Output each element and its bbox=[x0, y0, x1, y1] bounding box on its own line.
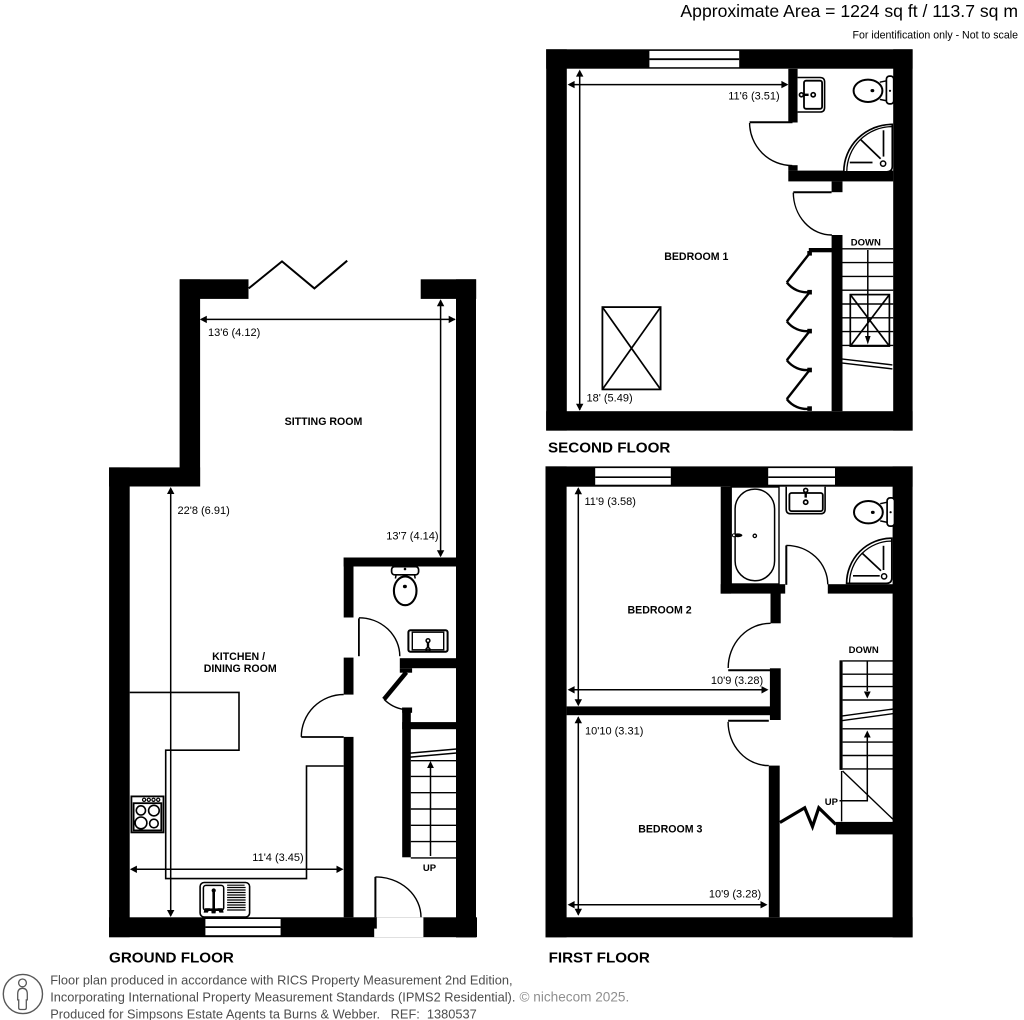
svg-text:10'10 (3.31): 10'10 (3.31) bbox=[585, 726, 643, 738]
svg-text:BEDROOM 3: BEDROOM 3 bbox=[638, 824, 702, 836]
svg-text:SITTING ROOM: SITTING ROOM bbox=[285, 416, 363, 428]
svg-text:© nichecom 2025.: © nichecom 2025. bbox=[520, 990, 630, 1005]
svg-text:FIRST FLOOR: FIRST FLOOR bbox=[549, 949, 650, 966]
svg-text:BEDROOM 1: BEDROOM 1 bbox=[664, 251, 728, 263]
svg-text:DOWN: DOWN bbox=[851, 237, 881, 248]
svg-text:Floor plan produced in accorda: Floor plan produced in accordance with R… bbox=[50, 972, 512, 987]
svg-text:UP: UP bbox=[423, 863, 437, 874]
svg-text:Produced for Simpsons Estate A: Produced for Simpsons Estate Agents ta B… bbox=[50, 1006, 477, 1020]
svg-text:10'9 (3.28): 10'9 (3.28) bbox=[709, 889, 761, 901]
svg-text:GROUND FLOOR: GROUND FLOOR bbox=[109, 949, 234, 966]
svg-text:For identification only - Not: For identification only - Not to scale bbox=[853, 30, 1019, 42]
svg-text:11'9 (3.58): 11'9 (3.58) bbox=[585, 496, 636, 508]
svg-text:BEDROOM 2: BEDROOM 2 bbox=[628, 605, 692, 617]
svg-text:22'8 (6.91): 22'8 (6.91) bbox=[178, 505, 230, 517]
svg-text:Incorporating International Pr: Incorporating International Property Mea… bbox=[50, 990, 515, 1005]
svg-text:13'7 (4.14): 13'7 (4.14) bbox=[386, 531, 438, 543]
svg-text:DOWN: DOWN bbox=[849, 645, 879, 656]
svg-text:UP: UP bbox=[825, 797, 839, 808]
svg-text:11'4 (3.45): 11'4 (3.45) bbox=[252, 852, 303, 864]
svg-text:Approximate Area = 1224 sq ft: Approximate Area = 1224 sq ft / 113.7 sq… bbox=[680, 1, 1018, 21]
svg-text:11'6 (3.51): 11'6 (3.51) bbox=[728, 91, 779, 103]
svg-text:18' (5.49): 18' (5.49) bbox=[587, 393, 633, 405]
svg-text:SECOND FLOOR: SECOND FLOOR bbox=[548, 439, 670, 456]
svg-text:13'6 (4.12): 13'6 (4.12) bbox=[208, 327, 260, 339]
svg-text:10'9 (3.28): 10'9 (3.28) bbox=[711, 675, 763, 687]
svg-text:DINING ROOM: DINING ROOM bbox=[204, 663, 277, 675]
svg-text:KITCHEN /: KITCHEN / bbox=[212, 651, 265, 663]
